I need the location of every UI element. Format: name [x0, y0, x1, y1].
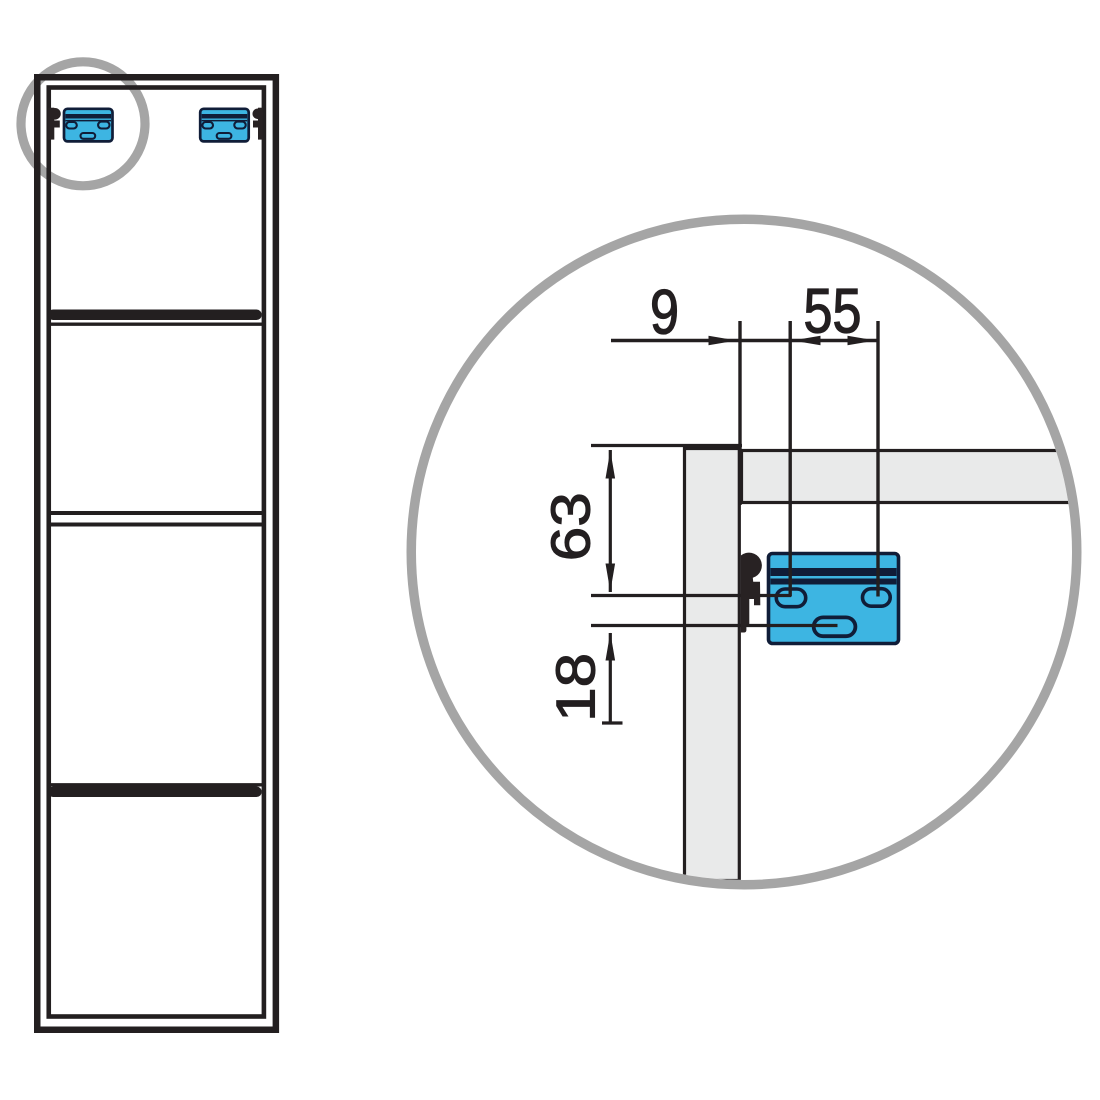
svg-text:18: 18 [544, 653, 606, 722]
svg-text:55: 55 [804, 277, 862, 347]
svg-text:63: 63 [540, 492, 602, 561]
svg-text:9: 9 [650, 278, 679, 348]
